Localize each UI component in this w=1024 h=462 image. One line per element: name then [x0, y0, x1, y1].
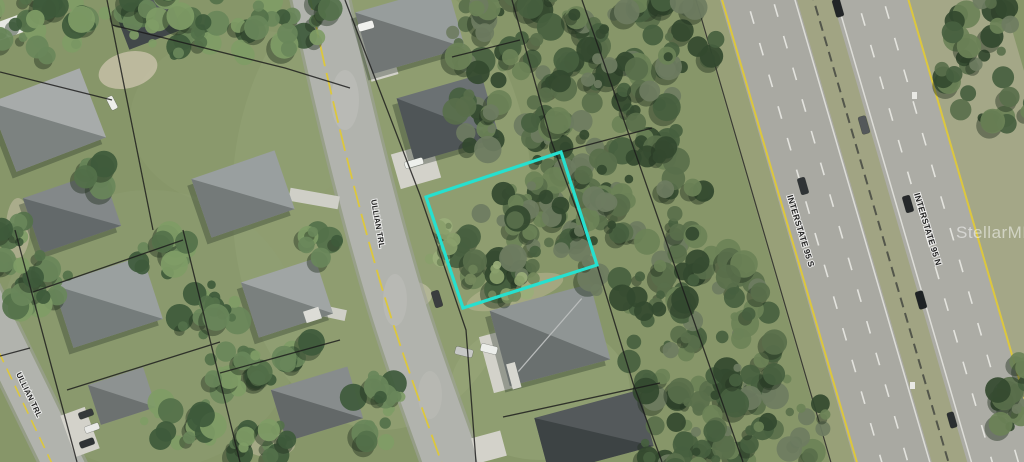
road-sign [910, 382, 915, 389]
road-sign [912, 92, 917, 99]
aerial-map: ULLIAN TRL ULLIAN TRL INTERSTATE 95 S IN… [0, 0, 1024, 462]
aerial-photo: ULLIAN TRL ULLIAN TRL INTERSTATE 95 S IN… [0, 0, 1024, 462]
watermark: StellarMLS [956, 223, 1024, 242]
